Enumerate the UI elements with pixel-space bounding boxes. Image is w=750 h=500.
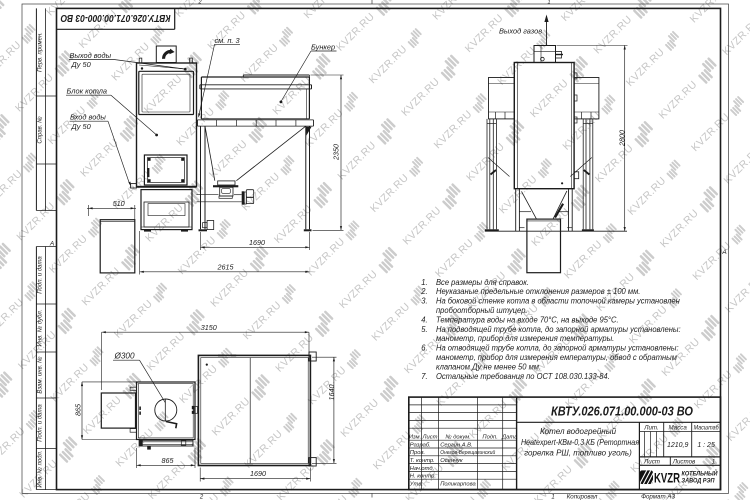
svg-text:KVZR: KVZR	[654, 470, 680, 486]
svg-text:А: А	[721, 249, 726, 256]
svg-text:см. п. 3: см. п. 3	[215, 36, 241, 45]
svg-text:ЗАВОД РЭП: ЗАВОД РЭП	[682, 478, 715, 485]
svg-text:1690: 1690	[250, 469, 266, 478]
svg-text:КВТУ.026.071.00.000-03 ВО: КВТУ.026.071.00.000-03 ВО	[60, 12, 170, 23]
svg-text:Сергин А.В.: Сергин А.В.	[440, 442, 472, 448]
svg-text:5.: 5.	[421, 325, 427, 334]
svg-text:Неуказаные предельные отклонен: Неуказаные предельные отклонения размеро…	[436, 287, 640, 296]
svg-text:Подп. и дата: Подп. и дата	[38, 404, 44, 442]
svg-text:Онегов-Верещагинский: Онегов-Верещагинский	[440, 449, 496, 456]
svg-text:1640: 1640	[327, 385, 336, 401]
svg-text:2350: 2350	[332, 144, 341, 161]
svg-text:510: 510	[113, 199, 125, 208]
svg-text:Блок котла: Блок котла	[67, 87, 108, 96]
svg-text:Выход воды: Выход воды	[70, 51, 112, 60]
svg-text:Бункер: Бункер	[311, 42, 335, 51]
svg-text:2: 2	[197, 0, 201, 5]
svg-text:865: 865	[74, 403, 83, 416]
svg-text:Утв.: Утв.	[409, 481, 423, 487]
svg-text:Разраб.: Разраб.	[410, 442, 431, 448]
svg-text:1: 1	[547, 0, 550, 5]
svg-text:Ду 50: Ду 50	[71, 122, 92, 131]
svg-text:2800: 2800	[617, 130, 626, 147]
svg-text:клапаном Ду не менее 50 мм.: клапаном Ду не менее 50 мм.	[436, 362, 541, 371]
svg-text:6.: 6.	[421, 343, 427, 352]
svg-text:На отводящей трубе котла, до з: На отводящей трубе котла, до запорной ар…	[436, 343, 679, 352]
svg-text:На подводящей трубе котла, до: На подводящей трубе котла, до запорной а…	[436, 325, 681, 334]
svg-text:Лит.: Лит.	[643, 424, 659, 431]
svg-text:Т. контр.: Т. контр.	[410, 458, 435, 464]
svg-text:На боковой стенке котла в обла: На боковой стенке котла в области топочн…	[436, 296, 680, 305]
svg-text:1690: 1690	[249, 238, 265, 247]
svg-text:1 : 25: 1 : 25	[697, 442, 715, 449]
svg-text:Справ. №: Справ. №	[37, 116, 44, 144]
svg-text:№ докум.: № докум.	[445, 434, 471, 440]
svg-text:Вход воды: Вход воды	[70, 113, 106, 122]
svg-text:7.: 7.	[421, 372, 427, 381]
svg-text:Формат А3: Формат А3	[641, 494, 675, 500]
svg-text:манометр, прибор для измерения: манометр, прибор для измерения емператур…	[436, 353, 678, 362]
svg-text:1: 1	[712, 459, 715, 466]
svg-text:Осенчук: Осенчук	[440, 458, 463, 464]
svg-text:Нач.отд.: Нач.отд.	[410, 466, 434, 472]
svg-text:Копировал: Копировал	[567, 494, 598, 500]
svg-text:Ду 50: Ду 50	[71, 60, 92, 69]
svg-text:Масса: Масса	[669, 424, 688, 431]
svg-text:Лист: Лист	[643, 459, 660, 466]
svg-text:Котел водогрейный: Котел водогрейный	[540, 427, 617, 436]
svg-text:Температура воды на входе 70°С: Температура воды на входе 70°С, на выход…	[436, 315, 619, 324]
svg-text:пробоотборный штуцер.: пробоотборный штуцер.	[436, 306, 528, 315]
svg-text:1.: 1.	[421, 278, 427, 287]
svg-text:Все размеры для справок.: Все размеры для справок.	[436, 278, 529, 287]
svg-text:Инв. № подл.: Инв. № подл.	[37, 450, 44, 487]
svg-text:Остальные требования по ОСТ 10: Остальные требования по ОСТ 108.030.133-…	[436, 372, 610, 381]
svg-text:Перв. примен.: Перв. примен.	[38, 32, 44, 72]
svg-text:Подп. и дата: Подп. и дата	[38, 256, 44, 294]
svg-text:Н. контр.: Н. контр.	[410, 474, 436, 480]
svg-text:Листов: Листов	[672, 459, 696, 466]
svg-text:1210,9: 1210,9	[667, 442, 689, 449]
svg-text:Лист: Лист	[422, 434, 438, 440]
svg-text:КВТУ.026.071.00.000-03 ВО: КВТУ.026.071.00.000-03 ВО	[551, 404, 693, 418]
svg-text:Выход газов: Выход газов	[499, 27, 542, 36]
svg-text:4.: 4.	[421, 315, 427, 324]
svg-text:3.: 3.	[421, 296, 427, 305]
svg-text:Ø300: Ø300	[114, 351, 135, 360]
svg-text:Пров.: Пров.	[410, 450, 425, 456]
svg-text:Подп.: Подп.	[482, 434, 497, 440]
svg-text:Взам. инв. №: Взам. инв. №	[37, 356, 44, 394]
svg-text:Масштаб: Масштаб	[694, 424, 719, 431]
svg-text:2615: 2615	[217, 262, 235, 271]
svg-text:Инв. № дубл.: Инв. № дубл.	[37, 310, 44, 347]
svg-text:Heatexpert-КВм-0,3 КБ (Ретортн: Heatexpert-КВм-0,3 КБ (Ретортная	[521, 438, 640, 447]
svg-text:манометр, прибор для измерения: манометр, прибор для измерения температу…	[436, 334, 614, 343]
svg-text:Дата: Дата	[501, 434, 518, 440]
svg-text:Изм.: Изм.	[409, 434, 421, 440]
svg-text:3150: 3150	[201, 323, 217, 332]
svg-text:2.: 2.	[420, 287, 427, 296]
svg-text:1: 1	[551, 494, 554, 500]
svg-text:Поликарпова: Поликарпова	[440, 481, 476, 487]
svg-text:КОТЕЛЬНЫЙ: КОТЕЛЬНЫЙ	[682, 469, 718, 478]
svg-text:2: 2	[199, 494, 204, 500]
svg-text:865: 865	[162, 456, 175, 465]
svg-text:горелка РШ, топливо уголь): горелка РШ, топливо уголь)	[524, 449, 632, 458]
